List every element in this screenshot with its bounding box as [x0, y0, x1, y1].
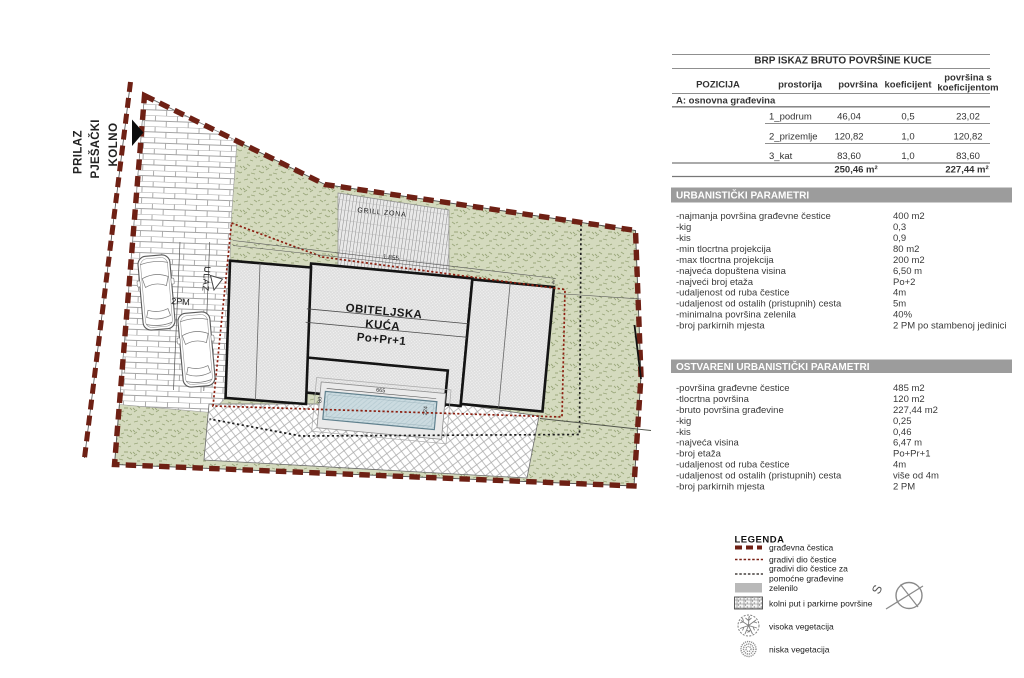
svg-text:-max tlocrtna projekcija: -max tlocrtna projekcija — [676, 255, 774, 266]
svg-text:400 m2: 400 m2 — [893, 211, 925, 222]
svg-text:1_podrum: 1_podrum — [769, 112, 812, 123]
svg-text:120,82: 120,82 — [834, 132, 863, 143]
svg-text:4m: 4m — [893, 288, 906, 299]
svg-text:niska vegetacija: niska vegetacija — [769, 645, 830, 655]
svg-text:6,47 m: 6,47 m — [893, 438, 922, 449]
svg-text:Po+2: Po+2 — [893, 277, 915, 288]
svg-text:0,3: 0,3 — [893, 222, 906, 233]
svg-text:-broj parkirnih mjesta: -broj parkirnih mjesta — [676, 481, 765, 492]
svg-text:-kig: -kig — [676, 416, 691, 427]
svg-text:gradivi dio čestice za: gradivi dio čestice za — [769, 564, 848, 574]
svg-text:46,04: 46,04 — [837, 112, 861, 123]
svg-text:-minimalna površina zelenila: -minimalna površina zelenila — [676, 310, 797, 321]
svg-text:-najveća visina: -najveća visina — [676, 438, 740, 449]
svg-text:-površina građevne čestice: -površina građevne čestice — [676, 383, 790, 394]
svg-text:1,0: 1,0 — [901, 151, 914, 162]
svg-text:-udaljenost od ruba čestice: -udaljenost od ruba čestice — [676, 460, 790, 471]
svg-text:80: 80 — [317, 397, 324, 404]
svg-text:-udaljenost od ruba čestice: -udaljenost od ruba čestice — [676, 288, 790, 299]
svg-text:-udaljenost od ostalih (pristu: -udaljenost od ostalih (pristupnih) cest… — [676, 470, 842, 481]
svg-text:-najveća dopuštena visina: -najveća dopuštena visina — [676, 266, 787, 277]
svg-text:-kis: -kis — [676, 233, 691, 244]
svg-text:Po+Pr+1: Po+Pr+1 — [893, 449, 931, 460]
svg-text:2 PM po stambenoj jedinici: 2 PM po stambenoj jedinici — [893, 321, 1007, 332]
svg-text:4m: 4m — [893, 460, 906, 471]
svg-text:2_prizemlje: 2_prizemlje — [769, 132, 818, 143]
svg-text:KOLNO: KOLNO — [108, 122, 120, 166]
svg-text:građevna čestica: građevna čestica — [769, 543, 834, 553]
svg-text:224: 224 — [423, 406, 430, 416]
svg-text:2 PM: 2 PM — [893, 481, 915, 492]
svg-text:-udaljenost od ostalih (pristu: -udaljenost od ostalih (pristupnih) cest… — [676, 299, 842, 310]
svg-text:-najmanja površina građevne če: -najmanja površina građevne čestice — [676, 211, 831, 222]
svg-text:kolni put i parkirne površine: kolni put i parkirne površine — [769, 599, 873, 609]
svg-text:1,0: 1,0 — [901, 132, 914, 143]
svg-text:40%: 40% — [893, 310, 913, 321]
svg-text:120 m2: 120 m2 — [893, 394, 925, 405]
svg-text:5m: 5m — [893, 299, 906, 310]
svg-text:-kig: -kig — [676, 222, 691, 233]
svg-text:120,82: 120,82 — [953, 132, 982, 143]
svg-text:80 m2: 80 m2 — [893, 244, 919, 255]
svg-text:0,25: 0,25 — [893, 416, 912, 427]
svg-text:23,02: 23,02 — [956, 112, 980, 123]
svg-text:BRP ISKAZ BRUTO POVRŠINE KUCE: BRP ISKAZ BRUTO POVRŠINE KUCE — [754, 54, 932, 67]
svg-text:koeficijentom: koeficijentom — [937, 83, 998, 94]
svg-text:više od 4m: više od 4m — [893, 470, 939, 481]
svg-text:POZICIJA: POZICIJA — [696, 80, 740, 91]
svg-text:zelenilo: zelenilo — [769, 583, 798, 593]
svg-text:227,44 m²: 227,44 m² — [945, 165, 988, 176]
svg-text:-broj etaža: -broj etaža — [676, 449, 722, 460]
svg-text:prostorija: prostorija — [778, 80, 823, 91]
svg-text:PRILAZ: PRILAZ — [73, 130, 85, 174]
svg-text:665: 665 — [376, 388, 386, 395]
svg-text:3_kat: 3_kat — [769, 151, 793, 162]
svg-text:485 m2: 485 m2 — [893, 383, 925, 394]
svg-text:83,60: 83,60 — [956, 151, 980, 162]
svg-text:0,5: 0,5 — [901, 112, 914, 123]
svg-text:83,60: 83,60 — [837, 151, 861, 162]
svg-text:-najveći broj etaža: -najveći broj etaža — [676, 277, 754, 288]
svg-text:koeficijent: koeficijent — [885, 80, 933, 91]
svg-text:250,46 m²: 250,46 m² — [834, 165, 877, 176]
svg-text:pomoćne građevine: pomoćne građevine — [769, 574, 844, 584]
svg-text:200 m2: 200 m2 — [893, 255, 925, 266]
svg-text:PJEŠAČKI: PJEŠAČKI — [89, 119, 102, 178]
svg-text:-broj parkirnih mjesta: -broj parkirnih mjesta — [676, 321, 765, 332]
svg-text:površina: površina — [838, 80, 878, 91]
svg-text:0,9: 0,9 — [893, 233, 906, 244]
svg-text:6,50 m: 6,50 m — [893, 266, 922, 277]
svg-text:227,44 m2: 227,44 m2 — [893, 405, 938, 416]
svg-text:-min tlocrtna projekcija: -min tlocrtna projekcija — [676, 244, 772, 255]
svg-text:0,46: 0,46 — [893, 427, 912, 438]
svg-text:URBANISTIČKI PARAMETRI: URBANISTIČKI PARAMETRI — [676, 189, 809, 202]
svg-text:-tlocrtna površina: -tlocrtna površina — [676, 394, 750, 405]
svg-text:2PM: 2PM — [171, 296, 190, 307]
svg-text:-bruto površina građevine: -bruto površina građevine — [676, 405, 784, 416]
svg-text:-kis: -kis — [676, 427, 691, 438]
svg-text:A: osnovna građevina: A: osnovna građevina — [676, 96, 776, 107]
svg-text:OSTVARENI URBANISTIČKI PARAMET: OSTVARENI URBANISTIČKI PARAMETRI — [676, 360, 870, 373]
svg-text:visoka vegetacija: visoka vegetacija — [769, 622, 834, 632]
